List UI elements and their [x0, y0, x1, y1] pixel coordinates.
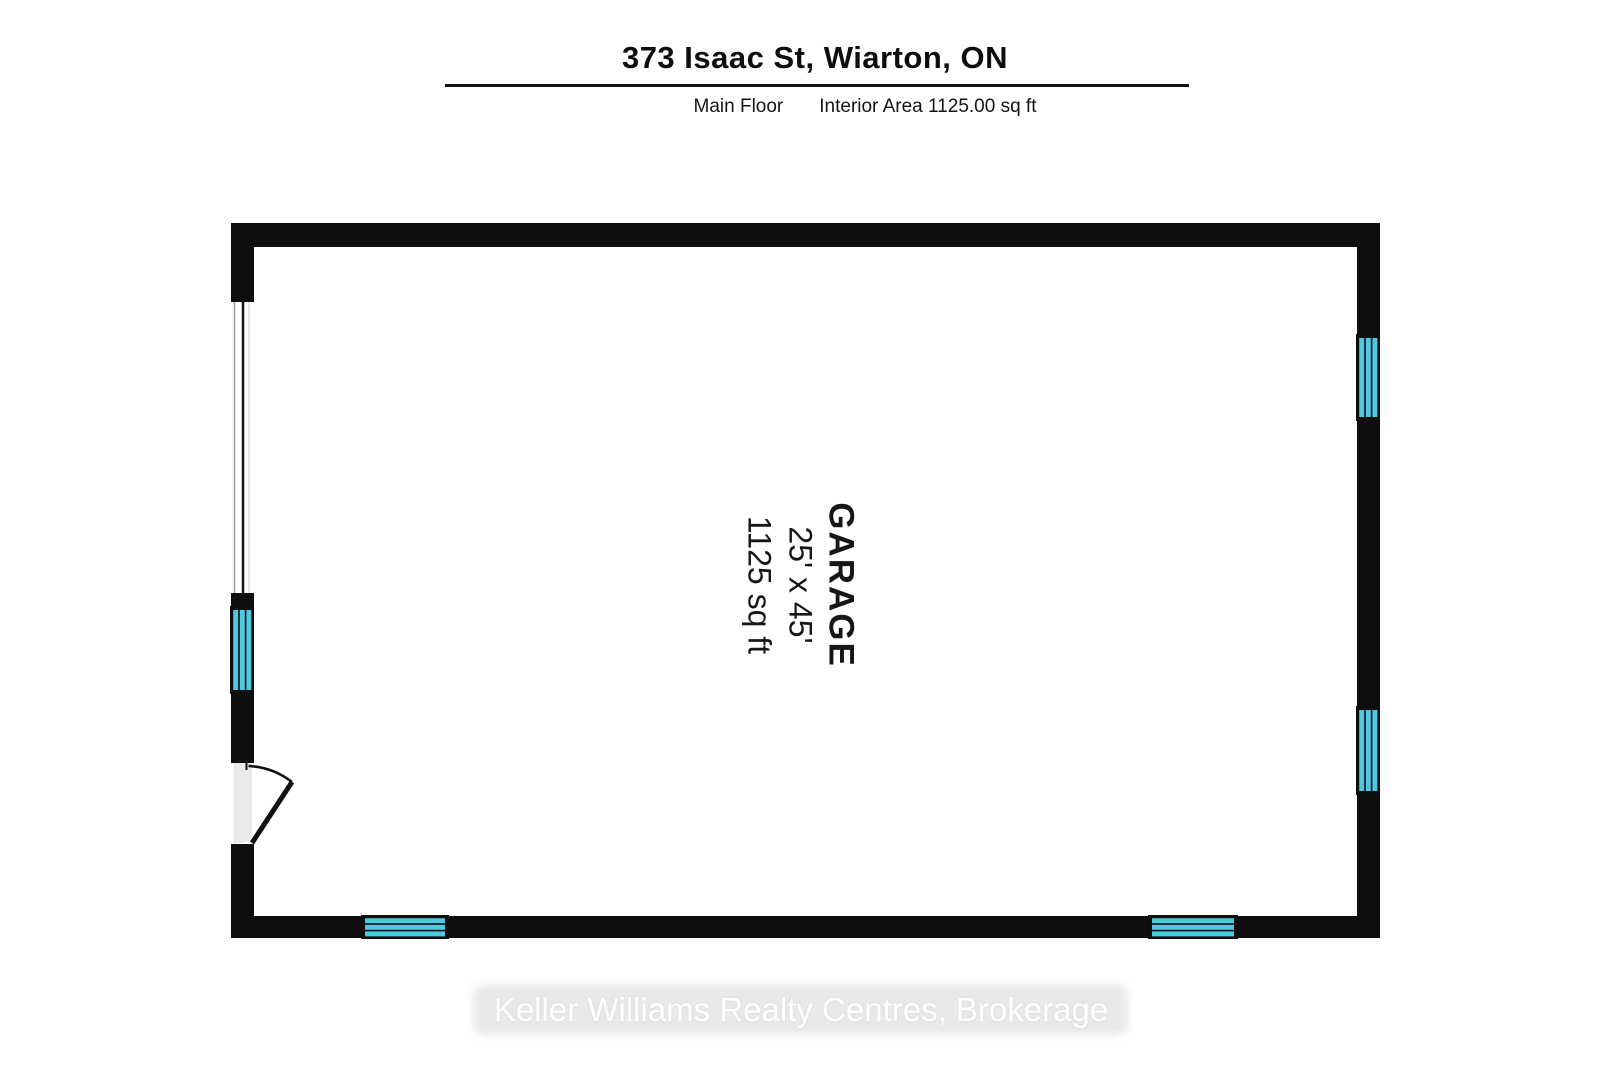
door-leaf — [252, 782, 292, 843]
wall-top — [232, 223, 1380, 247]
window-pane — [1366, 710, 1371, 791]
wall-left-segment — [231, 844, 254, 938]
window-bottom-right — [1148, 915, 1238, 939]
wall-right-segment — [1357, 793, 1380, 938]
entry-door — [234, 762, 293, 843]
window-pane — [1372, 338, 1377, 417]
window-right-lower — [1356, 706, 1380, 795]
window-pane — [1359, 338, 1364, 417]
window-pane — [233, 610, 238, 690]
window-pane — [240, 610, 245, 690]
window-pane — [1152, 918, 1234, 923]
room-dimensions: 25' x 45' — [780, 502, 821, 668]
window-bottom-left — [361, 915, 449, 939]
window-pane — [365, 918, 445, 923]
window-pane — [246, 610, 251, 690]
window-pane — [1372, 710, 1377, 791]
garage-door-opening — [235, 302, 250, 593]
window-pane — [1152, 925, 1234, 930]
window-pane — [1366, 338, 1371, 417]
wall-right-segment — [1357, 419, 1380, 708]
window-pane — [1152, 931, 1234, 936]
window-pane — [1359, 710, 1364, 791]
room-name: GARAGE — [821, 502, 862, 668]
window-pane — [365, 931, 445, 936]
wall-left-segment — [231, 692, 254, 763]
room-area: 1125 sq ft — [739, 502, 780, 668]
door-slab — [234, 763, 253, 843]
brokerage-watermark: Keller Williams Realty Centres, Brokerag… — [480, 991, 1122, 1029]
door-swing-arc — [249, 766, 293, 782]
window-left — [230, 606, 254, 694]
window-pane — [365, 925, 445, 930]
wall-left-segment — [231, 593, 254, 608]
window-right-upper — [1356, 334, 1380, 421]
room-label: GARAGE 25' x 45' 1125 sq ft — [739, 502, 862, 668]
wall-left-segment — [231, 223, 254, 302]
wall-right-segment — [1357, 223, 1380, 336]
